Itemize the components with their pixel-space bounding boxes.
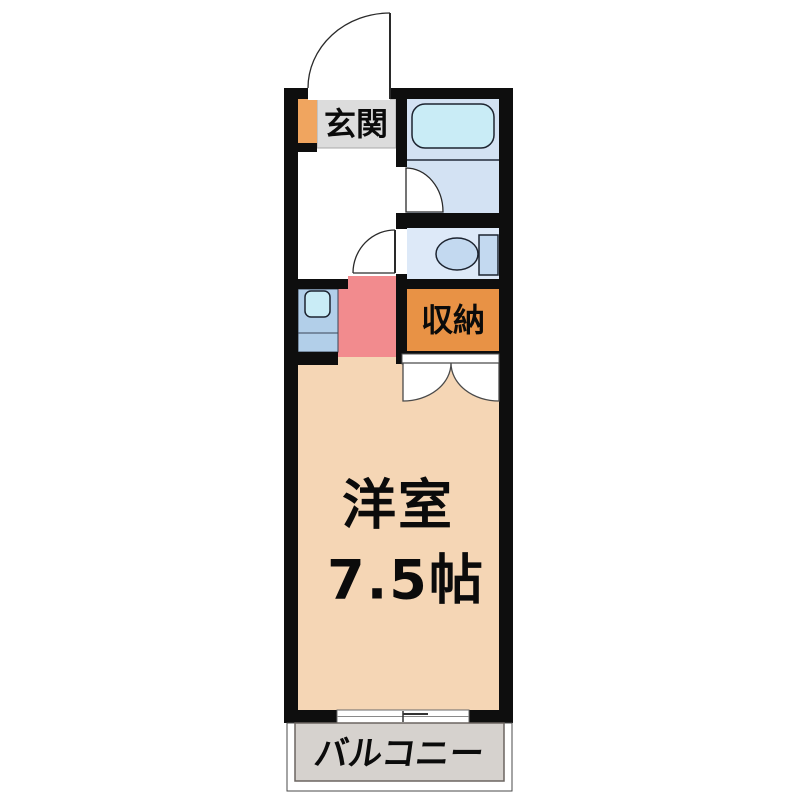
toilet-tank-icon: [479, 235, 498, 275]
wall-bath-toilet: [396, 213, 513, 228]
closet-label: 収納: [421, 301, 485, 339]
wall-hall-kitchen: [284, 279, 348, 289]
room-name-label: 洋室: [342, 474, 454, 537]
toilet-door-opening: [395, 229, 407, 274]
toilet-door-swing: [353, 230, 395, 273]
floor-plan-drawing: 玄関 収納 洋室 7.5帖 バルコニー: [0, 0, 800, 800]
shoe-cabinet: [298, 99, 317, 143]
entrance-opening: [308, 86, 390, 100]
wall-kitchen-room: [284, 352, 338, 365]
wall-right: [499, 88, 513, 723]
balcony-label: バルコニー: [312, 734, 487, 774]
floor-plan: 玄関 収納 洋室 7.5帖 バルコニー: [0, 0, 800, 800]
toilet-bowl-icon: [436, 238, 478, 270]
wall-toilet-closet: [396, 279, 513, 289]
entrance-label: 玄関: [324, 105, 388, 143]
kitchen-floor-upper: [348, 276, 396, 289]
room-size-label: 7.5帖: [327, 549, 485, 612]
sliding-window: [337, 710, 469, 723]
kitchen-floor: [338, 289, 396, 357]
wall-bottom-right: [469, 710, 513, 723]
bathtub-icon: [412, 104, 494, 148]
bathroom-door-opening: [395, 167, 407, 213]
wall-bottom-left: [284, 710, 337, 723]
shoe-cabinet-edge: [297, 143, 317, 152]
kitchen-sink-icon: [305, 291, 330, 317]
wall-left: [284, 88, 298, 723]
